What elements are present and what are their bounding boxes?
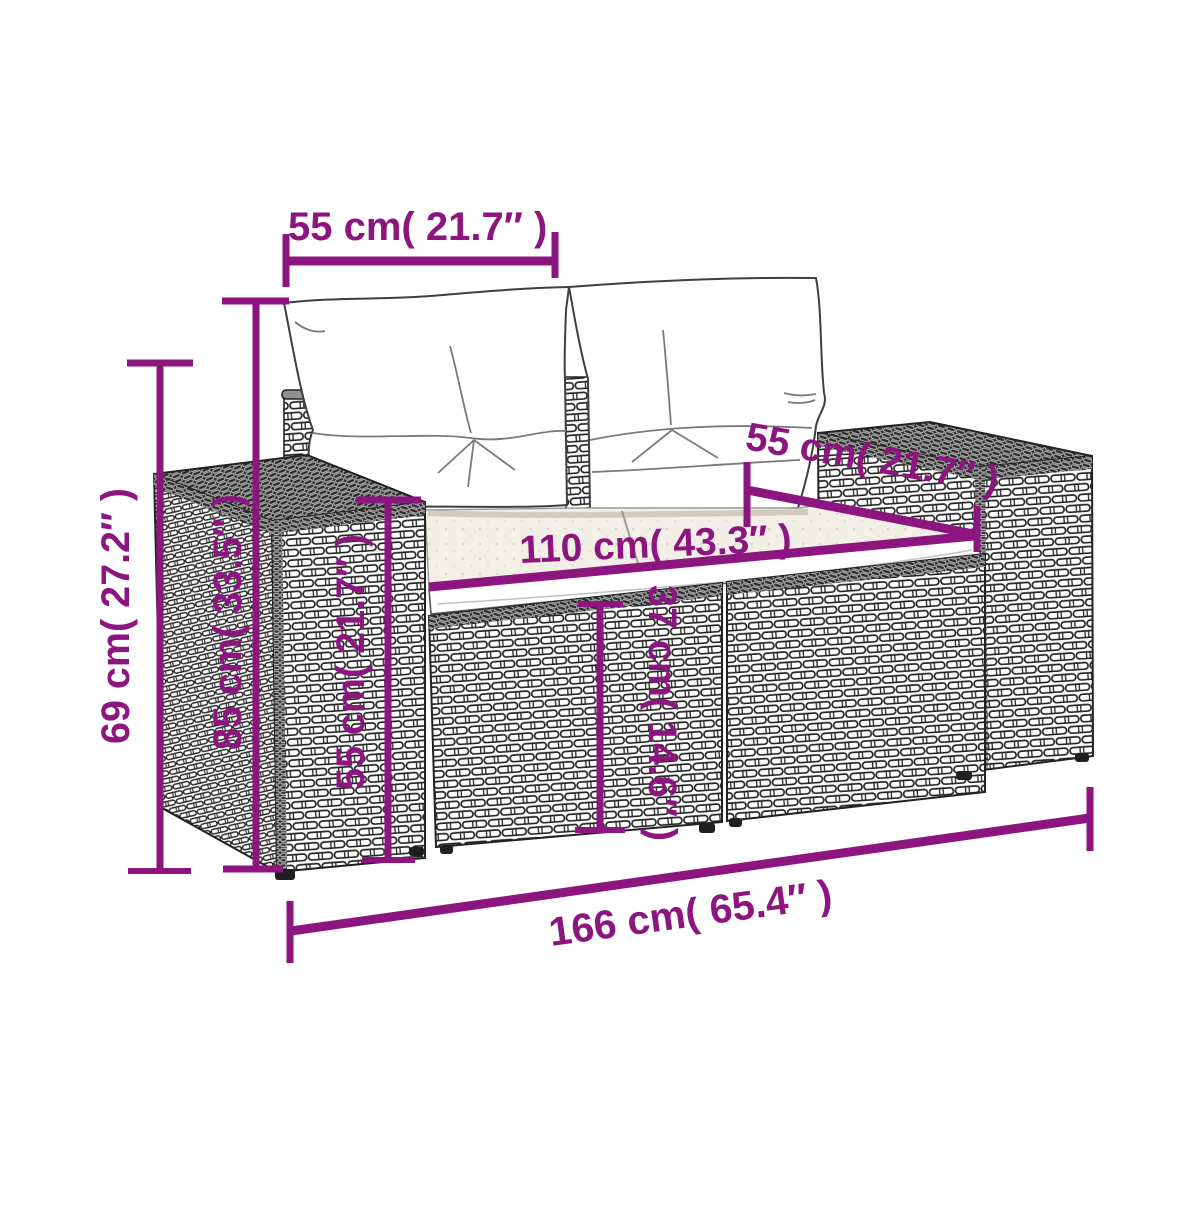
svg-text:55 cm( 21.7″ ): 55 cm( 21.7″ ) <box>329 534 373 790</box>
svg-text:37 cm( 14.6″ ): 37 cm( 14.6″ ) <box>640 585 684 841</box>
svg-text:69 cm( 27.2″ ): 69 cm( 27.2″ ) <box>94 488 138 744</box>
svg-text:85 cm( 33.5″ ): 85 cm( 33.5″ ) <box>206 494 250 750</box>
svg-text:55 cm( 21.7″ ): 55 cm( 21.7″ ) <box>288 205 547 249</box>
